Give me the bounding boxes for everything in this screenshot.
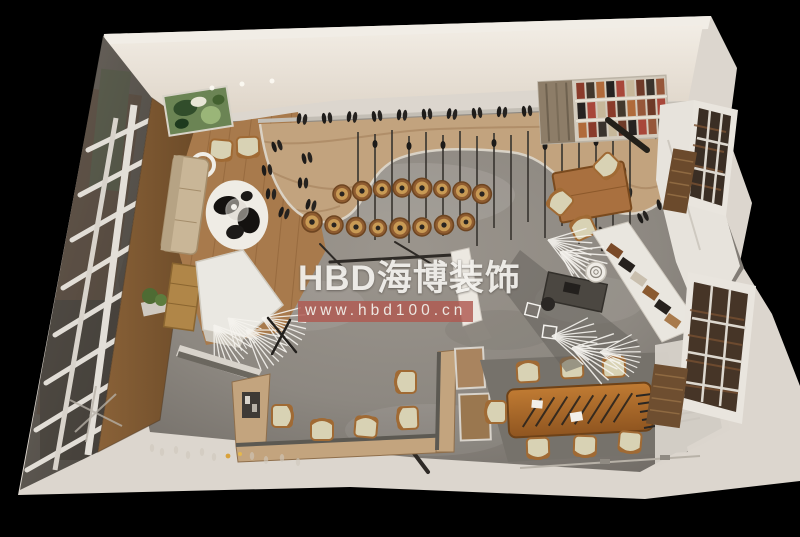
green-artwork xyxy=(163,86,232,136)
paper xyxy=(531,400,543,409)
conference-table xyxy=(507,382,653,437)
render-canvas: HBD海博装饰 www.hbd100.cn xyxy=(0,0,800,537)
task-chair xyxy=(541,297,555,311)
coffee-table xyxy=(226,199,248,221)
plant xyxy=(155,294,167,306)
bookshelf xyxy=(538,75,669,144)
floor-light xyxy=(226,454,231,459)
floor-light xyxy=(238,452,242,456)
armchair xyxy=(237,137,260,158)
spiral-table xyxy=(586,262,606,282)
floorplan-render xyxy=(0,0,800,537)
counter-equipment xyxy=(242,392,260,418)
side-cabinet xyxy=(455,347,485,388)
